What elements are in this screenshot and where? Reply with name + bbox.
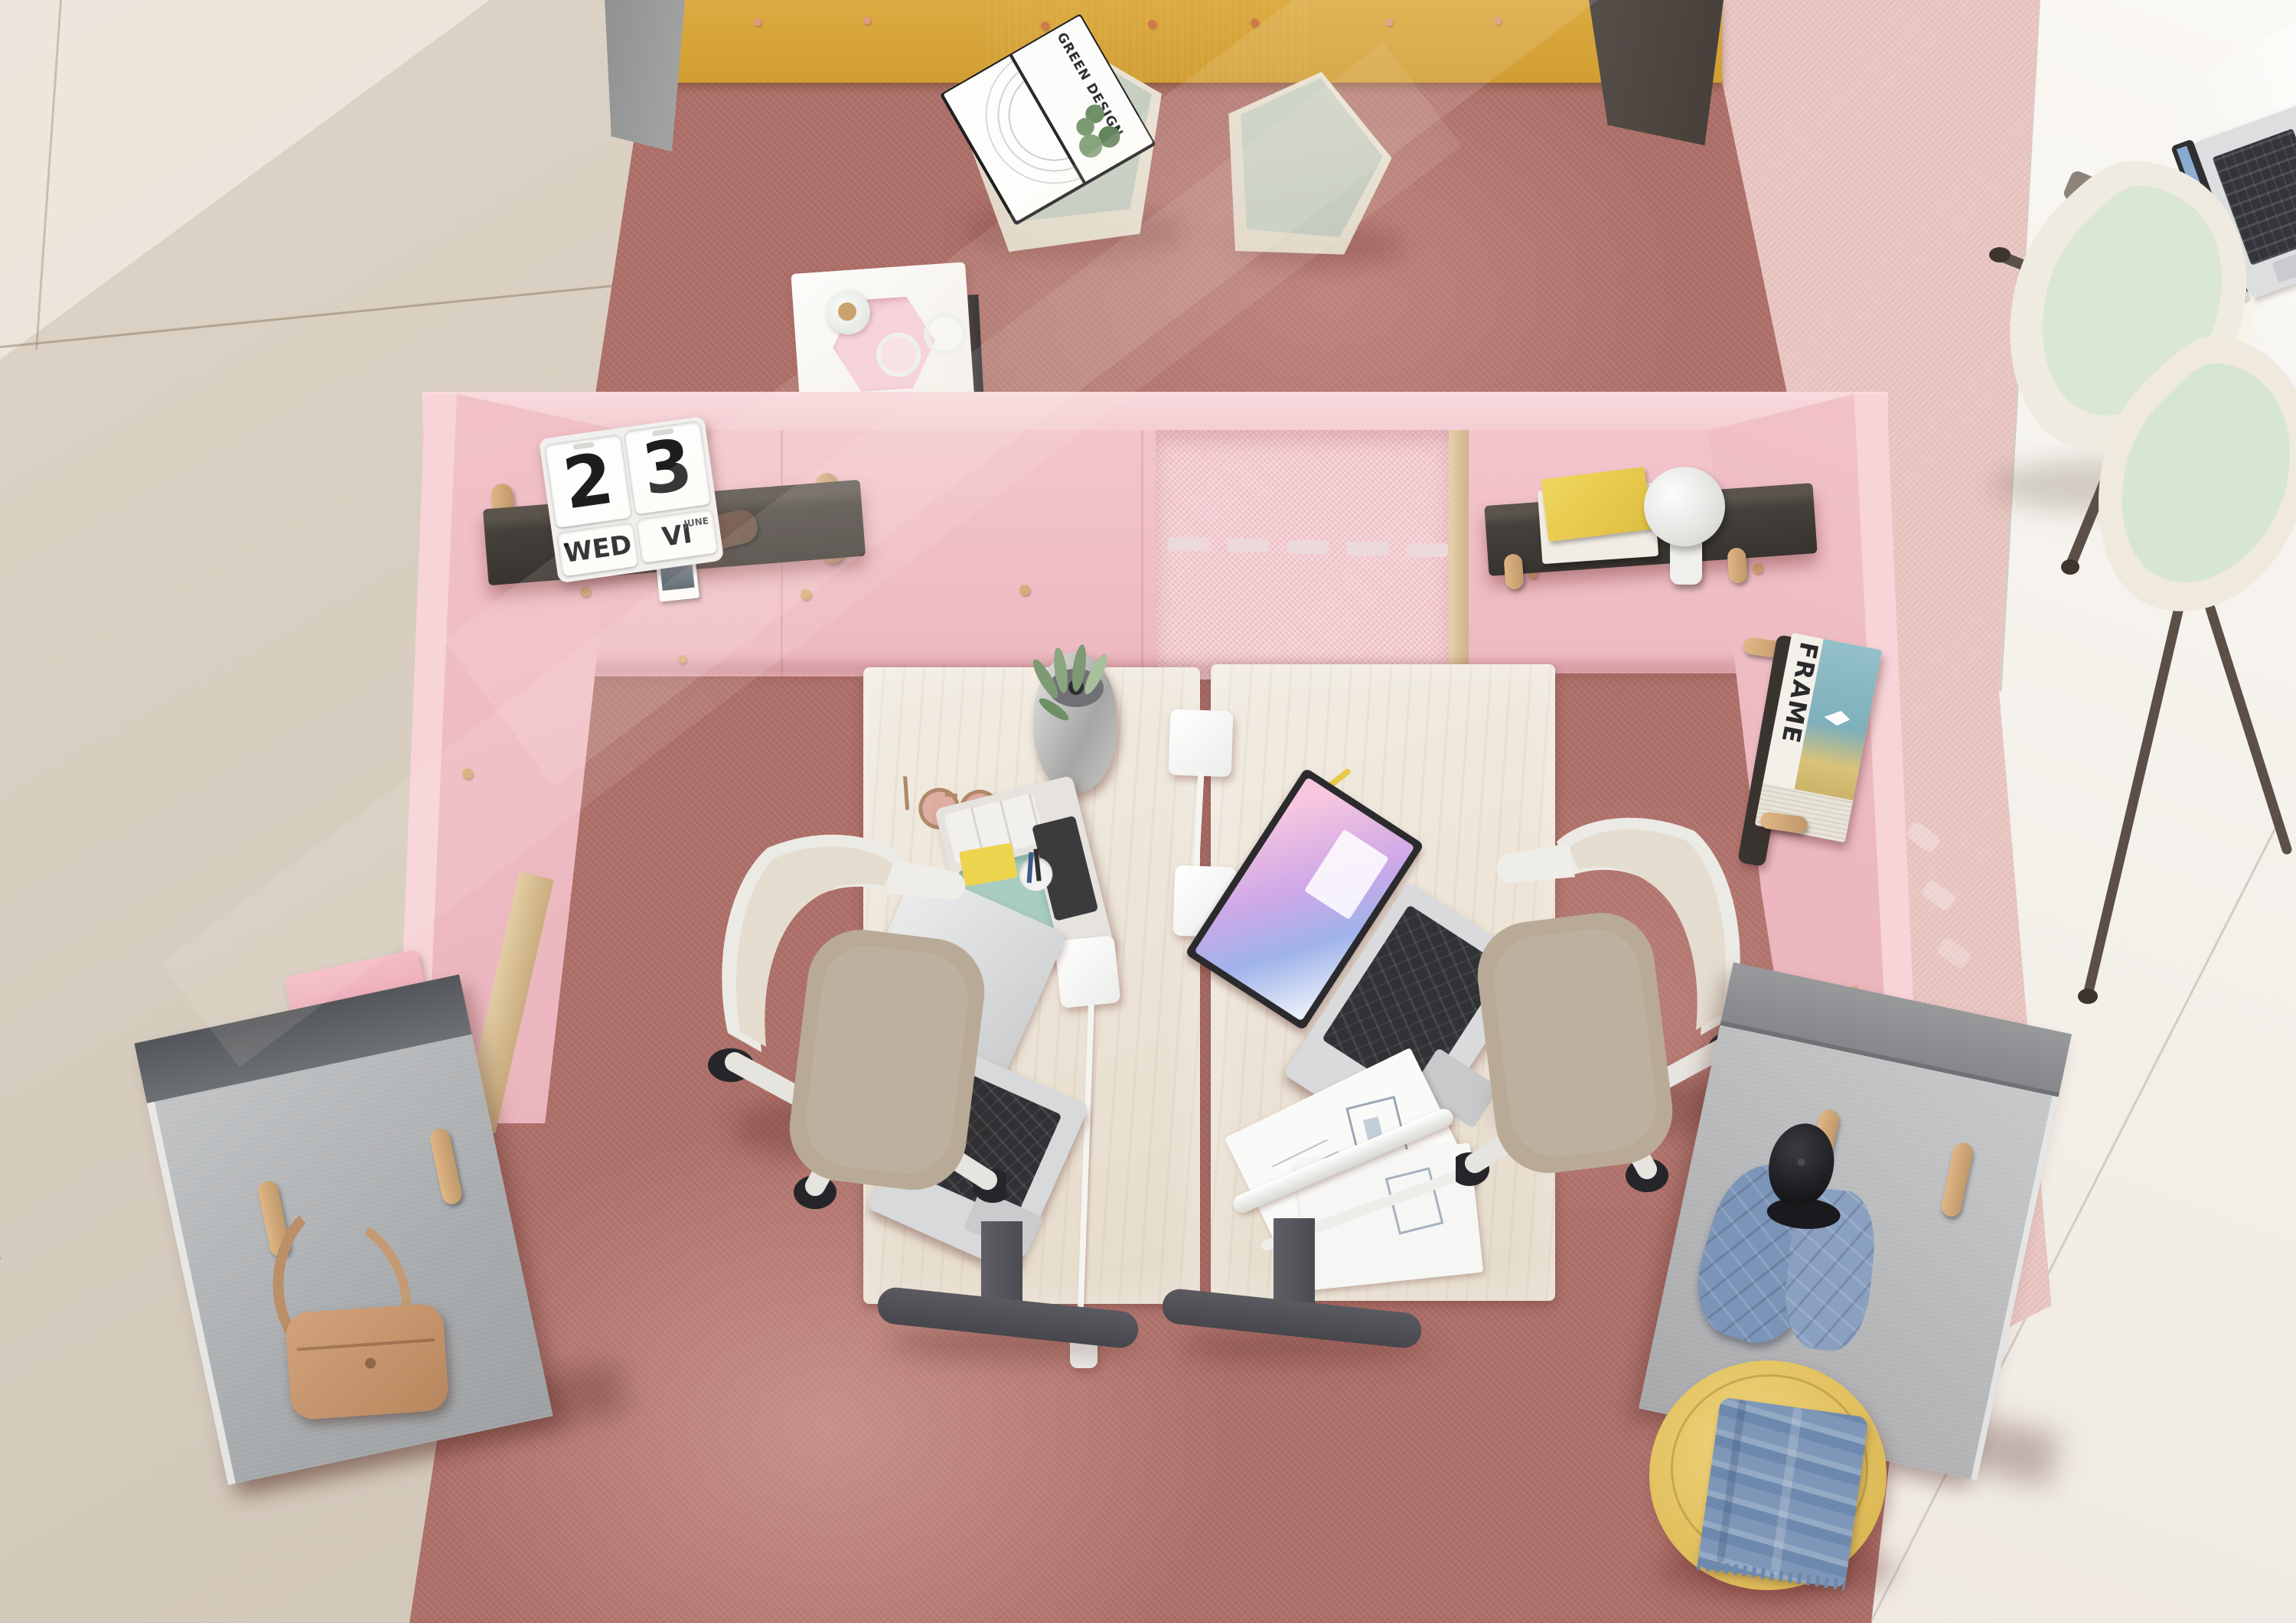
wall-button (1251, 18, 1259, 27)
book-stack-yellow (1541, 467, 1652, 542)
pod-alcove-slot (1347, 542, 1388, 556)
guest-chair-mint-2 (2057, 321, 2296, 1010)
pod-wall-button (462, 768, 473, 779)
pod-alcove-slot (1168, 537, 1209, 551)
pod-alcove-panel (1156, 430, 1449, 680)
pod-wall-button (1753, 563, 1763, 574)
pouf-green-2 (1205, 57, 1404, 275)
pod-alcove-slot (1228, 539, 1269, 552)
wall-column-dark (1589, 0, 1724, 145)
calendar-digit: 2 (545, 434, 632, 530)
shelf-peg (1503, 553, 1524, 590)
pod-wall-button (1019, 585, 1030, 595)
office-chair-left (700, 826, 1006, 1255)
wall-button (1385, 18, 1393, 26)
office-scene: GREEN DESIGN (0, 0, 2296, 1623)
calendar-digit-card-right: 3 (624, 421, 710, 515)
pod-alcove-slot (1407, 543, 1448, 557)
flip-calendar: 2 3 WED VI JUNE (539, 416, 724, 583)
calendar-day: WED (557, 522, 638, 576)
alcove-wood-trim (1449, 430, 1469, 680)
wall-button (863, 17, 871, 24)
shelf-peg (1727, 547, 1747, 584)
plant-pot (1033, 652, 1119, 794)
calendar-month-card: VI JUNE (637, 509, 718, 563)
pod-wall-button (580, 586, 591, 597)
wall-button (1148, 20, 1156, 28)
wall-column-gray (603, 0, 685, 152)
wall-button (754, 18, 762, 26)
pod-wall-button (678, 655, 687, 663)
mushroom-lamp (1644, 467, 1728, 589)
calendar-month: JUNE (683, 515, 709, 529)
wall-button (1494, 17, 1502, 24)
calendar-digit: 3 (624, 421, 710, 515)
pod-wall-button (801, 589, 811, 600)
blue-throw (1697, 1397, 1868, 1589)
calendar-day-card: WED (557, 522, 638, 576)
calendar-digit-card-left: 2 (545, 434, 631, 528)
pod-alcove-slot (1287, 540, 1329, 554)
desk-leg-right (1274, 1218, 1315, 1304)
